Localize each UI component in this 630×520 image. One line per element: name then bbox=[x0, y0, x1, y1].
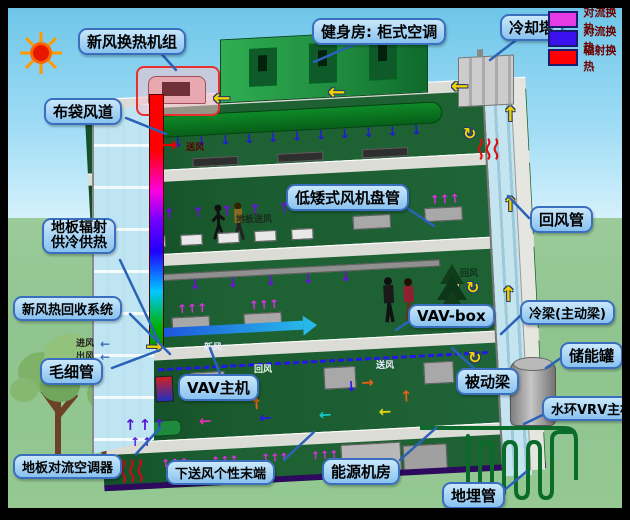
label-capillary: 毛细管 bbox=[40, 358, 103, 385]
label-cold-beam: 冷梁(主动梁) bbox=[520, 300, 615, 325]
diagram-frame: ↓↓↓↓↓↓↓↓↓↓↓↓ ↑↑↑↑↑↑↑↑ ↑↑↑ ↑↑↑ bbox=[0, 0, 630, 520]
label-storage-tank: 储能罐 bbox=[560, 342, 622, 369]
label-bag-duct: 布袋风道 bbox=[44, 98, 122, 125]
label-vrv-host: 水环VRV主机 bbox=[542, 396, 622, 421]
label-vav-host: VAV主机 bbox=[178, 374, 259, 401]
label-return-duct: 回风管 bbox=[530, 206, 593, 233]
label-floor-radiant: 地板辐射 供冷供热 bbox=[42, 218, 116, 254]
label-heat-recovery: 新风热回收系统 bbox=[13, 296, 122, 321]
color-swatch-icon bbox=[548, 11, 578, 28]
label-passive-beam: 被动梁 bbox=[456, 368, 519, 395]
label-vav-box: VAV-box bbox=[408, 304, 495, 328]
label-low-fan-coil: 低矮式风机盘管 bbox=[286, 184, 409, 211]
label-connectors bbox=[8, 8, 622, 508]
color-swatch-icon bbox=[548, 49, 578, 66]
legend-item: 辐射换热 bbox=[548, 48, 622, 67]
label-fresh-air-unit: 新风换热机组 bbox=[78, 28, 186, 55]
label-ground-pipe: 地埋管 bbox=[442, 482, 505, 508]
hvac-building-diagram: ↓↓↓↓↓↓↓↓↓↓↓↓ ↑↑↑↑↑↑↑↑ ↑↑↑ ↑↑↑ bbox=[8, 8, 622, 508]
label-underfloor-terminal: 下送风个性末端 bbox=[166, 460, 275, 485]
label-floor-convection: 地板对流空调器 bbox=[13, 454, 122, 479]
label-energy-room: 能源机房 bbox=[322, 458, 400, 485]
color-swatch-icon bbox=[548, 30, 578, 47]
label-gym-ac: 健身房: 柜式空调 bbox=[312, 18, 446, 45]
legend: 对流换热 对流换热 辐射换热 bbox=[548, 10, 622, 67]
